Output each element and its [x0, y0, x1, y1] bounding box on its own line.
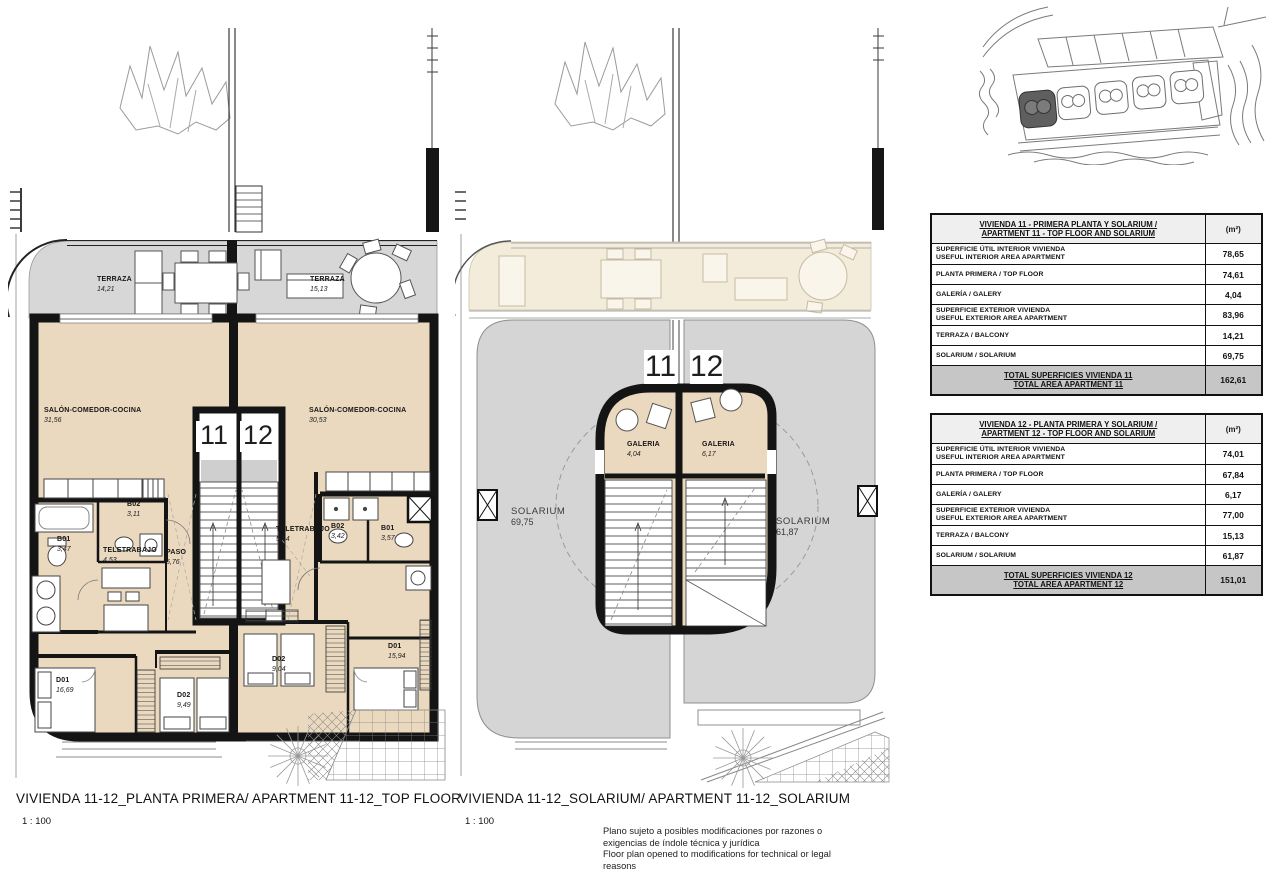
tree-sketch	[120, 46, 230, 134]
unit-number-11-solarium: 11	[644, 350, 677, 384]
unit-number-12-top-floor: 12	[240, 421, 276, 452]
table-cell-value: 74,61	[1205, 265, 1262, 285]
table-cell-value: 77,00	[1205, 505, 1262, 526]
room-label-b01-11: B01 3,47	[57, 536, 71, 554]
table-cell-label: TERRAZA / BALCONY	[931, 326, 1205, 346]
table-cell-value: 61,87	[1205, 546, 1262, 566]
table-cell-value: 78,65	[1205, 244, 1262, 265]
room-label-teletrabajo-12: TELETRABAJO 5,94	[276, 526, 330, 544]
table-cell-value: 74,01	[1205, 444, 1262, 465]
room-label-teletrabajo-11: TELETRABAJO 4,53	[103, 547, 157, 565]
table-cell-label: SOLARIUM / SOLARIUM	[931, 346, 1205, 366]
room-label-salon-12: SALÓN-COMEDOR-COCINA 30,53	[309, 407, 406, 425]
disclaimer-note: Plano sujeto a posibles modificaciones p…	[603, 826, 831, 872]
room-label-b01-12: B01 3,57	[381, 525, 395, 543]
ghost-terrace-band	[455, 239, 871, 318]
room-label-paso-11: PASO 5,76	[166, 549, 186, 567]
room-label-galeria-12: GALERIA 6,17	[702, 441, 735, 459]
table-unit-header: (m²)	[1205, 214, 1262, 244]
table-cell-value: 14,21	[1205, 326, 1262, 346]
table-cell-value: 4,04	[1205, 285, 1262, 305]
table-cell-label: SUPERFICIE ÚTIL INTERIOR VIVIENDAUSEFUL …	[931, 444, 1205, 465]
room-label-galeria-11: GALERIA 4,04	[627, 441, 660, 459]
table-cell-label: PLANTA PRIMERA / TOP FLOOR	[931, 465, 1205, 485]
room-label-solarium-12: SOLARIUM 61,87	[776, 516, 830, 536]
table-cell-label: SUPERFICIE EXTERIOR VIVIENDAUSEFUL EXTER…	[931, 505, 1205, 526]
tree-sketch	[555, 42, 665, 130]
top-floor-plan-drawing	[8, 20, 453, 790]
table-total-label: TOTAL SUPERFICIES VIVIENDA 11TOTAL AREA …	[931, 366, 1205, 396]
room-label-solarium-11: SOLARIUM 69,75	[511, 506, 565, 526]
solarium-plan-drawing	[455, 20, 895, 790]
caption-solarium: VIVIENDA 11-12_SOLARIUM/ APARTMENT 11-12…	[459, 791, 850, 806]
scale-solarium: 1 : 100	[465, 816, 494, 827]
table-cell-value: 67,84	[1205, 465, 1262, 485]
floor-plan-sheet: TERRAZA 14,21 TERRAZA 15,13 SALÓN-COMEDO…	[0, 0, 1266, 890]
room-label-salon-11: SALÓN-COMEDOR-COCINA 31,56	[44, 407, 141, 425]
room-label-d02-11: D02 9,49	[177, 692, 191, 710]
terrace-band	[8, 239, 437, 318]
building-blocks	[1018, 70, 1204, 129]
area-table-apartment-11: VIVIENDA 11 - PRIMERA PLANTA Y SOLARIUM …	[930, 213, 1263, 396]
unit-number-12-solarium: 12	[690, 350, 723, 384]
room-label-terraza-12: TERRAZA 15,13	[310, 276, 345, 294]
table-total-value: 162,61	[1205, 366, 1262, 396]
table-cell-value: 69,75	[1205, 346, 1262, 366]
table-total-value: 151,01	[1205, 566, 1262, 596]
room-label-terraza-11: TERRAZA 14,21	[97, 276, 132, 294]
area-table-apartment-12: VIVIENDA 12 - PLANTA PRIMERA Y SOLARIUM …	[930, 413, 1263, 596]
table-cell-label: SUPERFICIE ÚTIL INTERIOR VIVIENDAUSEFUL …	[931, 244, 1205, 265]
site-location-map	[978, 5, 1266, 165]
table-total-label: TOTAL SUPERFICIES VIVIENDA 12TOTAL AREA …	[931, 566, 1205, 596]
caption-top-floor: VIVIENDA 11-12_PLANTA PRIMERA/ APARTMENT…	[16, 791, 461, 806]
room-label-d02-12: D02 9,04	[272, 656, 286, 674]
table-cell-value: 15,13	[1205, 526, 1262, 546]
room-label-b02-12: B02 3,42	[331, 523, 345, 541]
stair-tower	[595, 388, 776, 630]
table-title: VIVIENDA 12 - PLANTA PRIMERA Y SOLARIUM …	[931, 414, 1205, 444]
table-cell-label: SOLARIUM / SOLARIUM	[931, 546, 1205, 566]
unit-number-11-top-floor: 11	[196, 421, 232, 452]
table-unit-header: (m²)	[1205, 414, 1262, 444]
table-cell-value: 6,17	[1205, 485, 1262, 505]
table-cell-label: GALERÍA / GALERY	[931, 285, 1205, 305]
room-label-d01-12: D01 15,94	[388, 643, 406, 661]
table-cell-value: 83,96	[1205, 305, 1262, 326]
room-label-d01-11: D01 16,69	[56, 677, 74, 695]
table-cell-label: SUPERFICIE EXTERIOR VIVIENDAUSEFUL EXTER…	[931, 305, 1205, 326]
table-cell-label: GALERÍA / GALERY	[931, 485, 1205, 505]
room-label-b02-11: B02 3,11	[127, 501, 140, 519]
scale-top-floor: 1 : 100	[22, 816, 51, 827]
table-title: VIVIENDA 11 - PRIMERA PLANTA Y SOLARIUM …	[931, 214, 1205, 244]
table-cell-label: PLANTA PRIMERA / TOP FLOOR	[931, 265, 1205, 285]
table-cell-label: TERRAZA / BALCONY	[931, 526, 1205, 546]
highlighted-block	[1018, 90, 1057, 129]
